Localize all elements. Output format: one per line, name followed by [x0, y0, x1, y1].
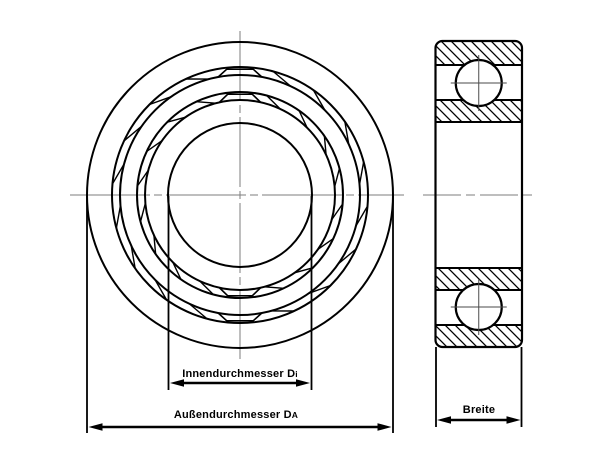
outer-diameter-label: Außendurchmesser DA	[174, 409, 298, 422]
cage-tick	[116, 205, 120, 228]
outer-diameter-label-text: Außendurchmesser D	[174, 409, 292, 421]
cage-tick	[335, 168, 340, 186]
inner-diameter-label-subscript: i	[295, 369, 298, 379]
inner-diameter-label: Innendurchmesser Di	[182, 368, 298, 381]
bearing-drawing-canvas: Innendurchmesser Di Außendurchmesser DA …	[0, 0, 600, 470]
width-label: Breite	[463, 404, 495, 417]
cage-tick	[141, 203, 146, 221]
side-view	[436, 41, 523, 347]
inner-diameter-label-text: Innendurchmesser D	[182, 368, 295, 380]
outer-diameter-label-subscript: A	[292, 410, 298, 420]
bearing-drawing	[0, 0, 600, 470]
cage-tick	[196, 102, 215, 104]
arrowhead-left	[437, 416, 451, 424]
width-label-text: Breite	[463, 404, 495, 416]
cage-tick	[265, 287, 284, 289]
cage-tick	[360, 162, 364, 185]
arrowhead-right	[296, 379, 310, 387]
arrowhead-left	[89, 423, 103, 431]
arrowhead-right	[378, 423, 392, 431]
arrowhead-right	[507, 416, 521, 424]
